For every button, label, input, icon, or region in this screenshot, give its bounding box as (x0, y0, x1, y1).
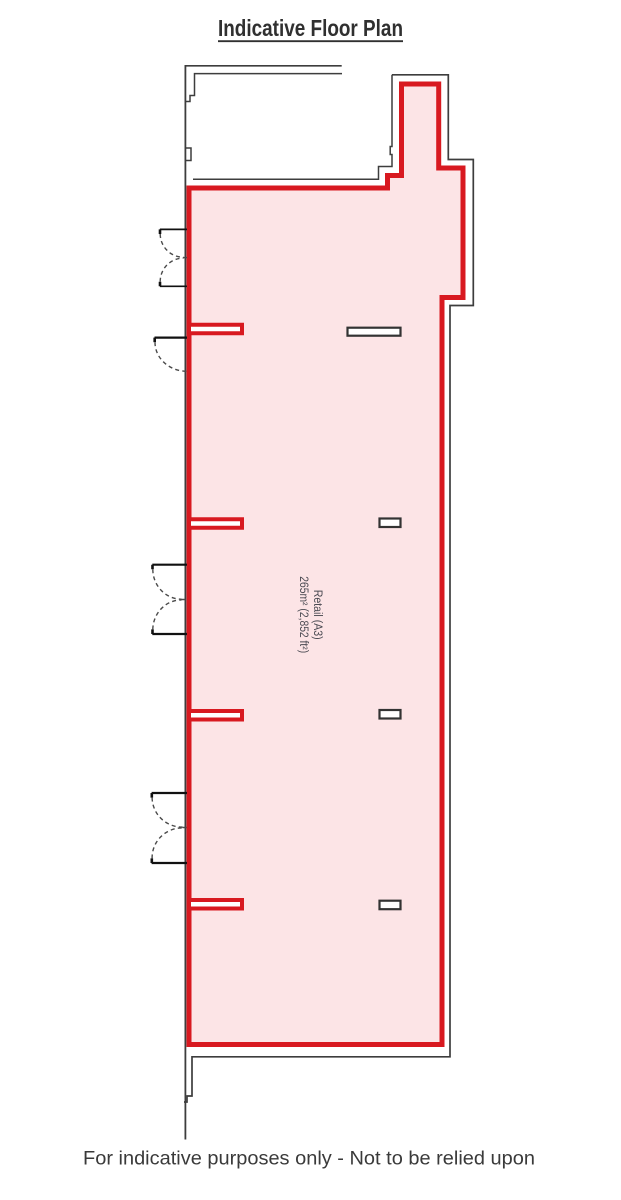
svg-text:For indicative purposes only -: For indicative purposes only - Not to be… (83, 1148, 535, 1170)
svg-text:Indicative Floor Plan: Indicative Floor Plan (218, 15, 403, 41)
svg-text:Retail (A3): Retail (A3) (311, 590, 323, 640)
svg-text:265m² (2,852 ft²): 265m² (2,852 ft²) (297, 576, 309, 653)
